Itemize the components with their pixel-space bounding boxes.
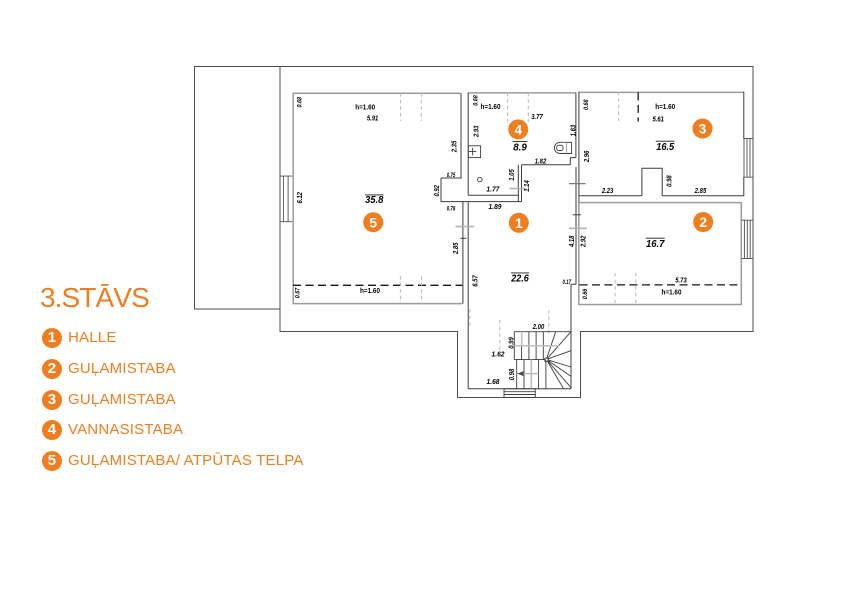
svg-text:0.78: 0.78 [447, 205, 456, 212]
svg-text:0.17: 0.17 [563, 279, 572, 286]
svg-text:2.35: 2.35 [450, 140, 459, 153]
svg-text:0.99: 0.99 [507, 337, 516, 349]
svg-text:2.00: 2.00 [532, 322, 544, 331]
svg-text:2.96: 2.96 [582, 150, 591, 163]
svg-text:2.93: 2.93 [471, 126, 480, 138]
svg-text:4.18: 4.18 [567, 236, 576, 248]
svg-text:6.57: 6.57 [471, 274, 480, 286]
svg-text:1.62: 1.62 [492, 350, 505, 359]
svg-text:5.61: 5.61 [652, 114, 664, 123]
svg-text:5.73: 5.73 [675, 276, 687, 285]
svg-text:2.23: 2.23 [601, 186, 613, 195]
svg-text:0.66: 0.66 [582, 288, 589, 299]
svg-text:1.77: 1.77 [486, 185, 500, 194]
svg-text:16.5: 16.5 [656, 142, 674, 153]
svg-text:1.68: 1.68 [487, 377, 500, 386]
svg-text:5.91: 5.91 [367, 114, 379, 123]
svg-text:6.12: 6.12 [295, 192, 304, 204]
svg-text:0.98: 0.98 [507, 369, 516, 381]
svg-text:0.68: 0.68 [296, 97, 303, 108]
svg-text:0.75: 0.75 [447, 172, 456, 179]
svg-text:8.9: 8.9 [513, 142, 527, 153]
svg-text:0.67: 0.67 [295, 287, 302, 298]
svg-text:3: 3 [699, 122, 707, 137]
svg-text:1.05: 1.05 [507, 168, 516, 180]
svg-text:1.89: 1.89 [489, 202, 502, 211]
svg-text:4: 4 [514, 122, 522, 137]
svg-text:h=1.60: h=1.60 [655, 102, 675, 111]
svg-text:h=1.60: h=1.60 [355, 103, 375, 112]
svg-text:0.68: 0.68 [472, 95, 479, 106]
svg-text:3.77: 3.77 [531, 112, 543, 121]
svg-text:1.82: 1.82 [535, 156, 547, 165]
svg-text:h=1.60: h=1.60 [662, 288, 682, 297]
svg-text:h=1.60: h=1.60 [360, 286, 380, 295]
svg-text:0.92: 0.92 [432, 185, 441, 197]
svg-text:h=1.60: h=1.60 [481, 102, 501, 111]
svg-text:16.7: 16.7 [646, 239, 665, 250]
svg-text:2.85: 2.85 [694, 186, 707, 195]
svg-text:0.98: 0.98 [665, 175, 674, 187]
svg-text:0.68: 0.68 [583, 99, 590, 110]
svg-text:1.63: 1.63 [569, 125, 578, 137]
svg-text:2: 2 [699, 215, 707, 230]
svg-text:22.6: 22.6 [510, 274, 529, 285]
svg-text:35.8: 35.8 [365, 195, 384, 206]
svg-text:2.92: 2.92 [578, 236, 587, 248]
svg-text:1.14: 1.14 [522, 180, 531, 192]
svg-text:5: 5 [369, 215, 377, 230]
svg-text:1: 1 [515, 216, 523, 231]
svg-text:2.85: 2.85 [451, 242, 460, 255]
